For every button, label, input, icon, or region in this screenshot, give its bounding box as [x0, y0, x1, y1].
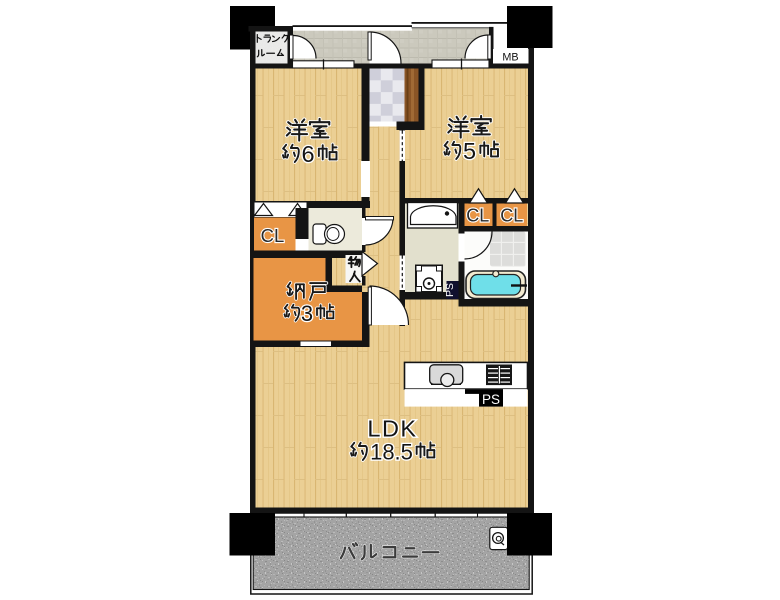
svg-text:PS: PS [444, 283, 456, 297]
svg-text:18.5: 18.5 [370, 440, 413, 465]
svg-text:CL: CL [500, 206, 523, 226]
svg-text:5: 5 [463, 138, 476, 164]
svg-text:3: 3 [301, 301, 313, 326]
svg-text:PS: PS [482, 392, 500, 407]
svg-text:CL: CL [261, 225, 285, 246]
svg-text:CL: CL [466, 206, 489, 226]
svg-text:LDK: LDK [367, 416, 417, 442]
svg-text:MB: MB [502, 52, 518, 64]
svg-text:6: 6 [301, 141, 314, 167]
